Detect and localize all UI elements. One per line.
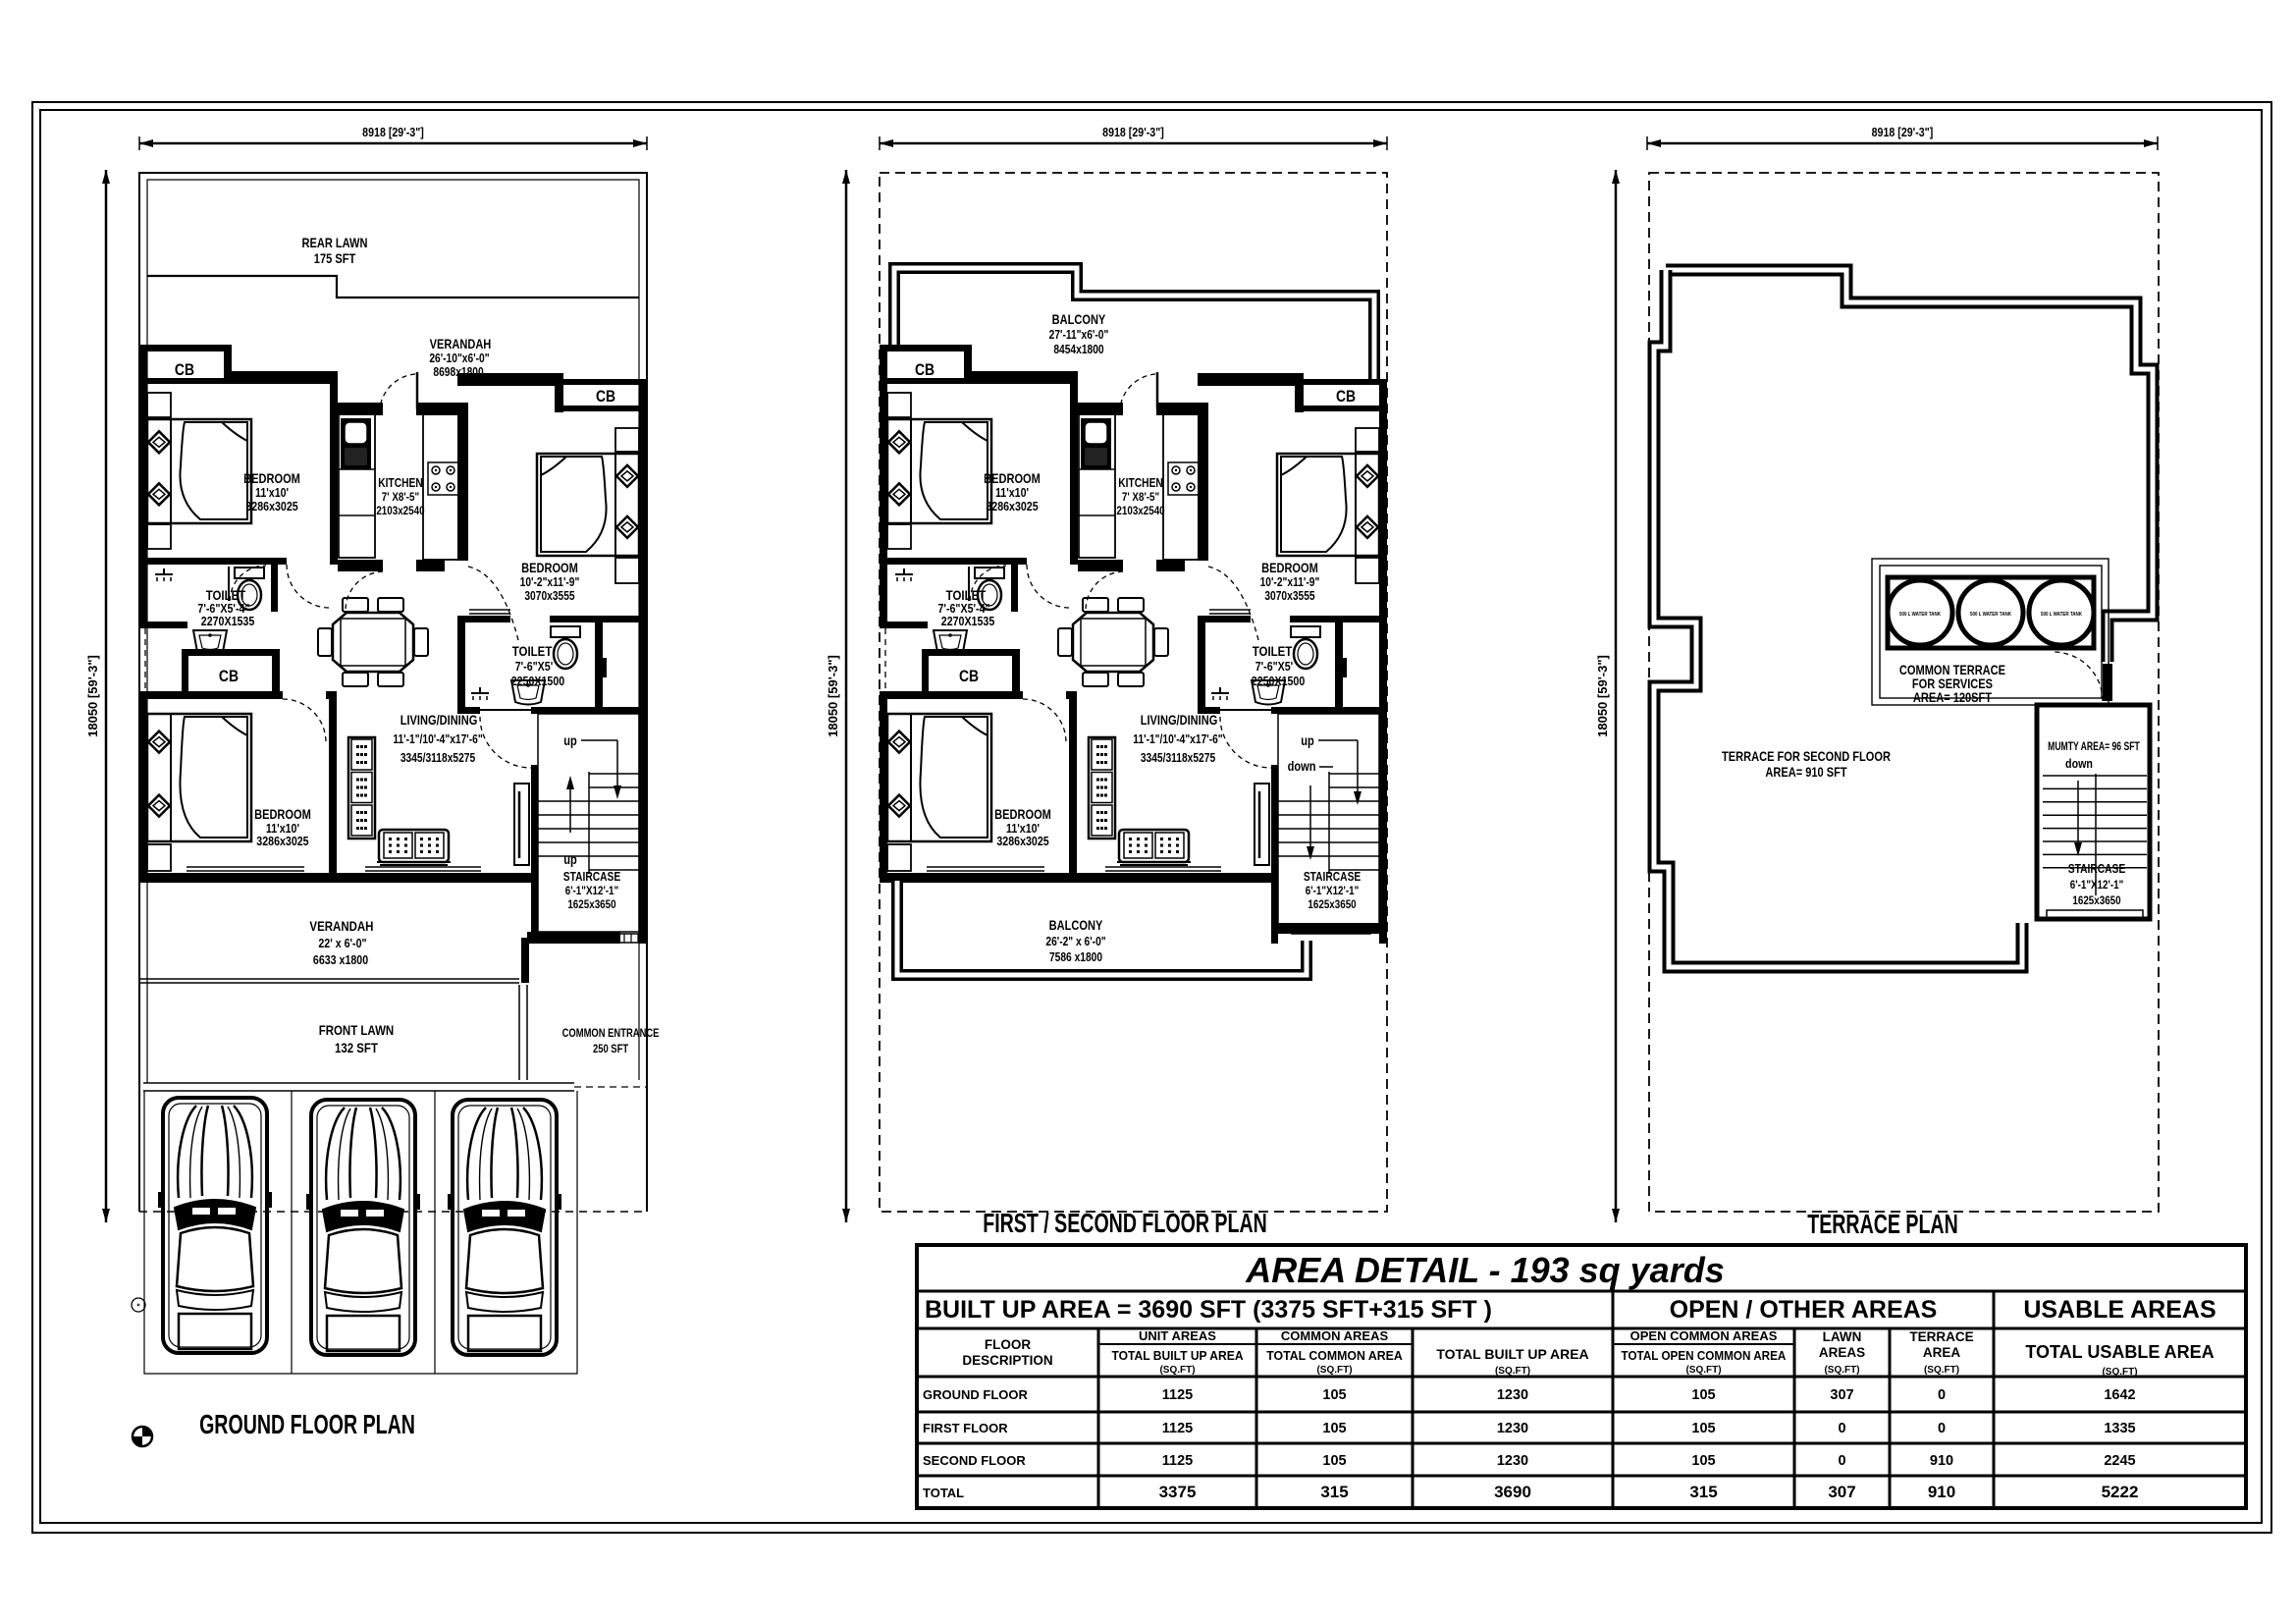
svg-text:1125: 1125: [1162, 1421, 1193, 1436]
svg-text:0: 0: [1838, 1421, 1845, 1436]
svg-text:TERRACE PLAN: TERRACE PLAN: [1807, 1210, 1957, 1240]
svg-text:22' x 6'-0": 22' x 6'-0": [318, 936, 366, 950]
svg-text:FOR SERVICES: FOR SERVICES: [1912, 676, 1993, 691]
svg-text:(SQ.FT): (SQ.FT): [1824, 1365, 1859, 1376]
svg-text:307: 307: [1828, 1483, 1855, 1501]
svg-text:BEDROOM: BEDROOM: [521, 561, 578, 575]
svg-text:GROUND FLOOR: GROUND FLOOR: [923, 1387, 1028, 1402]
svg-text:1625x3650: 1625x3650: [2072, 894, 2120, 907]
svg-text:910: 910: [1928, 1483, 1955, 1501]
svg-text:(SQ.FT): (SQ.FT): [1924, 1365, 1959, 1376]
svg-text:18050 [59'-3"]: 18050 [59'-3"]: [85, 655, 100, 737]
svg-text:BALCONY: BALCONY: [1049, 918, 1103, 933]
svg-text:2245: 2245: [2104, 1453, 2135, 1469]
svg-text:OPEN COMMON AREAS: OPEN COMMON AREAS: [1630, 1328, 1778, 1343]
svg-text:STAIRCASE: STAIRCASE: [2068, 863, 2126, 876]
svg-text:GROUND FLOOR PLAN: GROUND FLOOR PLAN: [199, 1410, 415, 1440]
svg-text:AREA DETAIL - 193 sq yards: AREA DETAIL - 193 sq yards: [1245, 1250, 1724, 1290]
svg-text:5222: 5222: [2102, 1483, 2139, 1501]
svg-text:3286x3025: 3286x3025: [986, 499, 1039, 514]
svg-text:11'-1"/10'-4"x17'-6": 11'-1"/10'-4"x17'-6": [393, 733, 482, 746]
svg-text:LIVING/DINING: LIVING/DINING: [400, 713, 478, 728]
svg-text:18050 [59'-3"]: 18050 [59'-3"]: [1595, 655, 1610, 737]
svg-text:307: 307: [1830, 1387, 1853, 1403]
svg-text:6'-1"X12'-1": 6'-1"X12'-1": [1306, 885, 1359, 897]
svg-text:KITCHEN: KITCHEN: [1118, 477, 1163, 490]
svg-text:2103x2540: 2103x2540: [376, 505, 424, 517]
svg-text:132 SFT: 132 SFT: [335, 1040, 378, 1055]
svg-text:2103x2540: 2103x2540: [1116, 505, 1164, 517]
svg-text:8698x1800: 8698x1800: [433, 366, 483, 379]
svg-text:CB: CB: [959, 668, 979, 686]
svg-text:105: 105: [1691, 1387, 1715, 1403]
svg-text:CB: CB: [175, 361, 194, 380]
svg-text:FIRST FLOOR: FIRST FLOOR: [923, 1421, 1008, 1435]
svg-text:3286x3025: 3286x3025: [245, 499, 298, 514]
svg-text:FLOOR: FLOOR: [985, 1337, 1031, 1352]
svg-text:TOTAL BUILT UP AREA: TOTAL BUILT UP AREA: [1112, 1349, 1244, 1363]
svg-text:COMMON ENTRANCE: COMMON ENTRANCE: [562, 1027, 660, 1040]
svg-text:OPEN / OTHER AREAS: OPEN / OTHER AREAS: [1670, 1296, 1938, 1324]
svg-text:250 SFT: 250 SFT: [593, 1043, 629, 1055]
svg-text:(SQ.FT): (SQ.FT): [2102, 1367, 2137, 1378]
svg-text:2270X1535: 2270X1535: [201, 614, 255, 628]
svg-text:(SQ.FT): (SQ.FT): [1159, 1365, 1195, 1376]
svg-text:FRONT LAWN: FRONT LAWN: [319, 1022, 395, 1038]
svg-text:BEDROOM: BEDROOM: [254, 807, 311, 822]
svg-text:down: down: [2065, 756, 2093, 771]
svg-text:TERRACE: TERRACE: [1909, 1329, 1973, 1344]
svg-text:500 L WATER TANK: 500 L WATER TANK: [1970, 612, 2011, 619]
svg-text:7' X8'-5": 7' X8'-5": [382, 491, 419, 504]
svg-text:7' X8'-5": 7' X8'-5": [1122, 491, 1159, 504]
svg-text:175 SFT: 175 SFT: [314, 251, 356, 266]
svg-text:26'-2" x 6'-0": 26'-2" x 6'-0": [1045, 936, 1105, 948]
svg-text:STAIRCASE: STAIRCASE: [563, 871, 621, 884]
svg-text:1625x3650: 1625x3650: [1308, 898, 1356, 911]
svg-text:LAWN: LAWN: [1823, 1329, 1862, 1344]
svg-text:3286x3025: 3286x3025: [256, 834, 309, 848]
svg-text:COMMON AREAS: COMMON AREAS: [1281, 1328, 1389, 1343]
svg-text:BEDROOM: BEDROOM: [984, 471, 1041, 486]
svg-text:TOTAL COMMON AREA: TOTAL COMMON AREA: [1266, 1349, 1403, 1363]
svg-text:7'-6"X5': 7'-6"X5': [515, 659, 554, 674]
svg-text:7586 x1800: 7586 x1800: [1049, 951, 1102, 964]
svg-text:0: 0: [1938, 1421, 1946, 1436]
svg-text:6633 x1800: 6633 x1800: [313, 952, 369, 967]
svg-text:CB: CB: [596, 388, 615, 406]
svg-text:TOILET: TOILET: [512, 643, 553, 659]
svg-text:FIRST / SECOND FLOOR PLAN: FIRST / SECOND FLOOR PLAN: [983, 1209, 1267, 1239]
svg-text:1230: 1230: [1497, 1421, 1528, 1436]
svg-text:BUILT UP AREA = 3690 SFT (3375: BUILT UP AREA = 3690 SFT (3375 SFT+315 S…: [925, 1296, 1492, 1324]
svg-text:7'-6"X5': 7'-6"X5': [1255, 659, 1294, 674]
svg-text:TOILET: TOILET: [1253, 643, 1293, 659]
svg-text:315: 315: [1689, 1483, 1717, 1501]
svg-text:CB: CB: [1336, 388, 1356, 406]
svg-text:27'-11"x6'-0": 27'-11"x6'-0": [1049, 329, 1109, 342]
svg-text:1230: 1230: [1497, 1453, 1528, 1469]
svg-text:3070x3555: 3070x3555: [1264, 590, 1315, 603]
svg-text:CB: CB: [219, 668, 239, 686]
svg-text:10'-2"x11'-9": 10'-2"x11'-9": [520, 576, 580, 589]
svg-text:STAIRCASE: STAIRCASE: [1304, 871, 1362, 884]
svg-text:1625x3650: 1625x3650: [567, 898, 615, 911]
svg-text:8918 [29'-3"]: 8918 [29'-3"]: [1872, 125, 1934, 139]
svg-text:TOTAL OPEN COMMON AREA: TOTAL OPEN COMMON AREA: [1622, 1348, 1787, 1363]
svg-text:8454x1800: 8454x1800: [1053, 344, 1103, 356]
svg-text:8918 [29'-3"]: 8918 [29'-3"]: [1102, 125, 1164, 139]
svg-text:AREA= 910 SFT: AREA= 910 SFT: [1765, 765, 1847, 780]
svg-text:2270X1535: 2270X1535: [941, 614, 995, 628]
svg-text:(SQ.FT): (SQ.FT): [1495, 1366, 1530, 1377]
svg-text:3375: 3375: [1159, 1483, 1197, 1501]
svg-text:BEDROOM: BEDROOM: [243, 471, 300, 486]
svg-text:UNIT AREAS: UNIT AREAS: [1139, 1328, 1216, 1343]
svg-text:105: 105: [1322, 1387, 1346, 1403]
svg-text:REAR LAWN: REAR LAWN: [302, 236, 368, 250]
svg-text:TOTAL BUILT UP AREA: TOTAL BUILT UP AREA: [1436, 1346, 1588, 1362]
svg-text:105: 105: [1691, 1453, 1715, 1469]
svg-text:BALCONY: BALCONY: [1052, 312, 1106, 327]
svg-text:2250X1500: 2250X1500: [511, 674, 565, 688]
svg-text:VERANDAH: VERANDAH: [309, 918, 373, 934]
svg-text:1125: 1125: [1162, 1453, 1193, 1469]
svg-text:6'-1"X12'-1": 6'-1"X12'-1": [565, 885, 618, 897]
svg-text:TOTAL USABLE AREA: TOTAL USABLE AREA: [2025, 1342, 2214, 1362]
svg-text:11'x10': 11'x10': [995, 485, 1029, 500]
svg-text:8918 [29'-3"]: 8918 [29'-3"]: [362, 125, 424, 139]
svg-text:BEDROOM: BEDROOM: [1261, 561, 1318, 575]
svg-text:10'-2"x11'-9": 10'-2"x11'-9": [1260, 576, 1320, 589]
svg-text:(SQ.FT): (SQ.FT): [1316, 1365, 1352, 1376]
svg-text:105: 105: [1322, 1453, 1346, 1469]
svg-text:105: 105: [1691, 1421, 1715, 1436]
svg-text:up: up: [1301, 733, 1314, 748]
svg-text:SECOND FLOOR: SECOND FLOOR: [923, 1453, 1026, 1468]
svg-text:3345/3118x5275: 3345/3118x5275: [1141, 752, 1216, 765]
svg-text:3286x3025: 3286x3025: [996, 834, 1049, 848]
svg-text:KITCHEN: KITCHEN: [378, 477, 423, 490]
svg-text:1642: 1642: [2104, 1387, 2135, 1403]
svg-text:0: 0: [1838, 1453, 1845, 1469]
svg-text:COMMON TERRACE: COMMON TERRACE: [1899, 663, 2005, 677]
svg-text:AREAS: AREAS: [1819, 1345, 1865, 1360]
svg-text:0: 0: [1938, 1387, 1946, 1403]
svg-text:3690: 3690: [1494, 1483, 1531, 1501]
svg-text:(SQ.FT): (SQ.FT): [1685, 1365, 1721, 1376]
svg-text:3345/3118x5275: 3345/3118x5275: [400, 752, 476, 765]
svg-text:VERANDAH: VERANDAH: [430, 337, 492, 352]
svg-text:TERRACE FOR SECOND FLOOR: TERRACE FOR SECOND FLOOR: [1722, 749, 1891, 764]
svg-text:AREA= 120SFT: AREA= 120SFT: [1913, 690, 1993, 705]
svg-text:11'-1"/10'-4"x17'-6": 11'-1"/10'-4"x17'-6": [1133, 733, 1222, 746]
svg-text:26'-10"x6'-0": 26'-10"x6'-0": [429, 352, 489, 365]
svg-text:3070x3555: 3070x3555: [524, 590, 575, 603]
svg-text:CB: CB: [915, 361, 934, 380]
svg-text:down: down: [1288, 759, 1316, 774]
svg-text:315: 315: [1320, 1483, 1348, 1501]
svg-text:USABLE AREAS: USABLE AREAS: [2023, 1296, 2216, 1324]
svg-text:BEDROOM: BEDROOM: [994, 807, 1051, 822]
svg-text:11'x10': 11'x10': [255, 485, 289, 500]
svg-text:910: 910: [1930, 1453, 1953, 1469]
svg-text:DESCRIPTION: DESCRIPTION: [962, 1353, 1052, 1368]
svg-text:18050 [59'-3"]: 18050 [59'-3"]: [826, 655, 840, 737]
svg-text:500 L WATER TANK: 500 L WATER TANK: [2041, 612, 2082, 619]
svg-text:500 L WATER TANK: 500 L WATER TANK: [1899, 612, 1941, 619]
svg-text:AREA: AREA: [1923, 1345, 1961, 1360]
svg-text:up: up: [563, 852, 577, 867]
svg-text:up: up: [563, 733, 577, 748]
svg-text:1230: 1230: [1497, 1387, 1528, 1403]
svg-text:1125: 1125: [1162, 1387, 1193, 1403]
svg-text:2250X1500: 2250X1500: [1252, 674, 1306, 688]
svg-text:LIVING/DINING: LIVING/DINING: [1141, 713, 1218, 728]
svg-text:105: 105: [1322, 1421, 1346, 1436]
svg-text:TOTAL: TOTAL: [923, 1486, 964, 1500]
svg-text:6'-1"X12'-1": 6'-1"X12'-1": [2070, 879, 2123, 892]
svg-text:MUMTY AREA= 96 SFT: MUMTY AREA= 96 SFT: [2048, 741, 2140, 753]
svg-text:1335: 1335: [2104, 1421, 2135, 1436]
